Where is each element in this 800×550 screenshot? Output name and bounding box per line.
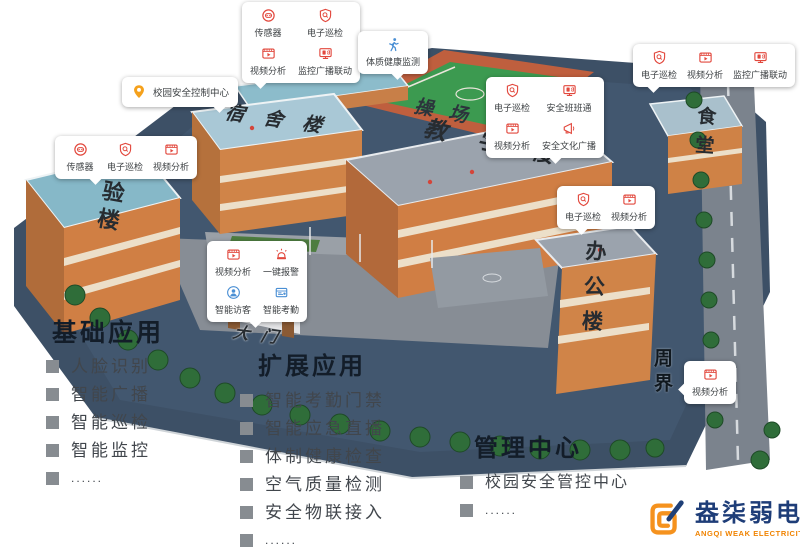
feature-label: 智能考勤 xyxy=(263,303,299,316)
feature-badge-broadcast-link[interactable]: 监控广播联动 xyxy=(733,50,787,81)
feature-label: 安全文化广播 xyxy=(542,139,596,152)
feature-label: 视频分析 xyxy=(153,160,189,173)
feature-label: 体质健康监测 xyxy=(366,55,420,68)
square-bullet-icon xyxy=(240,394,253,407)
video-analysis-icon xyxy=(261,46,276,61)
list-item: 智能广播 xyxy=(46,385,164,404)
brand-name: 盎柒弱电 xyxy=(695,502,800,526)
callout-canteen-features: 电子巡检 视频分析 监控广播联动 xyxy=(633,44,795,87)
feature-label: 电子巡检 xyxy=(107,160,143,173)
feature-badge-broadcast-link[interactable]: 监控广播联动 xyxy=(298,46,352,77)
megaphone-icon xyxy=(562,121,577,136)
callout-dormitory-features: 传感器 电子巡检 视频分析 监控广播联动 xyxy=(242,2,360,83)
video-analysis-icon xyxy=(164,142,179,157)
feature-label: 安全班班通 xyxy=(547,101,592,114)
feature-label: 视频分析 xyxy=(611,210,647,223)
brand-subtitle: ANGQI WEAK ELECTRICITY xyxy=(695,529,800,538)
feature-badge-video-analysis[interactable]: 视频分析 xyxy=(215,247,251,278)
callout-perimeter-camera[interactable]: 视频分析 xyxy=(684,361,736,404)
callout-control-center[interactable]: 校园安全控制中心 xyxy=(122,77,238,107)
list-item: ...... xyxy=(460,501,629,520)
square-bullet-icon xyxy=(240,478,253,491)
feature-label: 电子巡检 xyxy=(307,26,343,39)
video-analysis-icon xyxy=(698,50,713,65)
feature-badge-video-analysis[interactable]: 视频分析 xyxy=(687,50,723,81)
brand-logo: 盎柒弱电 ANGQI WEAK ELECTRICITY xyxy=(642,497,800,543)
extended-applications-list: 扩展应用 智能考勤门禁 智能应急直播 体制健康检查 空气质量检测 安全物联接入 … xyxy=(240,352,385,550)
control-center-label: 校园安全控制中心 xyxy=(153,85,229,99)
feature-label: 视频分析 xyxy=(215,265,251,278)
sensor-icon xyxy=(261,8,276,23)
feature-badge-e-patrol[interactable]: 电子巡检 xyxy=(494,83,530,114)
feature-label: 视频分析 xyxy=(250,64,286,77)
square-bullet-icon xyxy=(460,476,473,489)
square-bullet-icon xyxy=(46,444,59,457)
square-bullet-icon xyxy=(46,472,59,485)
feature-label: 监控广播联动 xyxy=(298,64,352,77)
feature-badge-sensor[interactable]: 传感器 xyxy=(250,8,286,39)
management-center-list: 管理中心 校园安全管控中心 ...... xyxy=(460,434,629,520)
feature-label: 传感器 xyxy=(66,160,93,173)
feature-badge-class-monitor[interactable]: 安全班班通 xyxy=(542,83,596,114)
feature-label: 一键报警 xyxy=(263,265,299,278)
list-item: 安全物联接入 xyxy=(240,503,385,522)
broadcast-monitor-icon xyxy=(318,46,333,61)
building-label-office: 办公楼 xyxy=(579,240,605,346)
square-bullet-icon xyxy=(240,422,253,435)
feature-label: 电子巡检 xyxy=(565,210,601,223)
feature-label: 视频分析 xyxy=(687,68,723,81)
feature-label: 智能访客 xyxy=(215,303,251,316)
location-pin-icon xyxy=(131,84,147,100)
feature-badge-sensor[interactable]: 传感器 xyxy=(63,142,97,173)
feature-badge-culture-broadcast[interactable]: 安全文化广播 xyxy=(542,121,596,152)
feature-badge-e-patrol[interactable]: 电子巡检 xyxy=(298,8,352,39)
video-analysis-icon xyxy=(505,121,520,136)
list-item: 校园安全管控中心 xyxy=(460,473,629,492)
feature-badge-e-patrol[interactable]: 电子巡检 xyxy=(565,192,601,223)
square-bullet-icon xyxy=(46,416,59,429)
shield-patrol-icon xyxy=(118,142,133,157)
callout-health-monitoring[interactable]: 体质健康监测 xyxy=(358,31,428,74)
class-monitor-icon xyxy=(562,83,577,98)
feature-label: 电子巡检 xyxy=(641,68,677,81)
feature-badge-panic-alarm[interactable]: 一键报警 xyxy=(263,247,299,278)
alarm-icon xyxy=(274,247,289,262)
feature-badge-e-patrol[interactable]: 电子巡检 xyxy=(107,142,143,173)
video-analysis-icon xyxy=(703,367,718,382)
list-item: ...... xyxy=(46,469,164,488)
feature-label: 视频分析 xyxy=(692,385,728,398)
visitor-icon xyxy=(226,285,241,300)
list-item: 智能监控 xyxy=(46,441,164,460)
list-item: ...... xyxy=(240,531,385,550)
feature-badge-visitor[interactable]: 智能访客 xyxy=(215,285,251,316)
perimeter-label: 周界 xyxy=(652,348,671,398)
square-bullet-icon xyxy=(460,504,473,517)
square-bullet-icon xyxy=(46,388,59,401)
attendance-icon xyxy=(274,285,289,300)
shield-patrol-icon xyxy=(318,8,333,23)
callout-lab-features: 传感器 电子巡检 视频分析 xyxy=(55,136,197,179)
list-item: 智能考勤门禁 xyxy=(240,391,385,410)
square-bullet-icon xyxy=(240,506,253,519)
square-bullet-icon xyxy=(240,534,253,547)
extended-applications-title: 扩展应用 xyxy=(258,352,385,382)
smart-campus-infographic: 实验楼 宿舍楼 教学楼 办公楼 食堂 操场 大门 周界 传感器 电子巡检 视频分… xyxy=(0,0,800,550)
shield-patrol-icon xyxy=(576,192,591,207)
callout-gate-features: 视频分析 一键报警 智能访客 智能考勤 xyxy=(207,241,307,322)
square-bullet-icon xyxy=(46,360,59,373)
feature-label: 传感器 xyxy=(255,26,282,39)
feature-badge-video-analysis[interactable]: 视频分析 xyxy=(250,46,286,77)
shield-patrol-icon xyxy=(505,83,520,98)
list-item: 空气质量检测 xyxy=(240,475,385,494)
feature-label: 电子巡检 xyxy=(494,101,530,114)
callout-playground-features: 电子巡检 安全班班通 视频分析 安全文化广播 xyxy=(486,77,604,158)
list-item: 智能巡检 xyxy=(46,413,164,432)
list-item: 智能应急直播 xyxy=(240,419,385,438)
building-label-canteen: 食堂 xyxy=(692,105,715,164)
video-analysis-icon xyxy=(622,192,637,207)
feature-badge-video-analysis[interactable]: 视频分析 xyxy=(153,142,189,173)
feature-badge-e-patrol[interactable]: 电子巡检 xyxy=(641,50,677,81)
callout-office-features: 电子巡检 视频分析 xyxy=(557,186,655,229)
feature-badge-video-analysis[interactable]: 视频分析 xyxy=(494,121,530,152)
feature-badge-attendance[interactable]: 智能考勤 xyxy=(263,285,299,316)
runner-icon xyxy=(386,37,401,52)
list-item: 体制健康检查 xyxy=(240,447,385,466)
list-item: 人脸识别 xyxy=(46,357,164,376)
brand-logo-icon xyxy=(642,497,688,543)
feature-badge-video-analysis[interactable]: 视频分析 xyxy=(611,192,647,223)
feature-label: 监控广播联动 xyxy=(733,68,787,81)
management-center-title: 管理中心 xyxy=(474,434,629,464)
shield-patrol-icon xyxy=(652,50,667,65)
video-analysis-icon xyxy=(226,247,241,262)
basic-applications-title: 基础应用 xyxy=(52,318,164,348)
square-bullet-icon xyxy=(240,450,253,463)
feature-label: 视频分析 xyxy=(494,139,530,152)
basic-applications-list: 基础应用 人脸识别 智能广播 智能巡检 智能监控 ...... xyxy=(46,318,164,488)
sensor-icon xyxy=(73,142,88,157)
broadcast-monitor-icon xyxy=(753,50,768,65)
